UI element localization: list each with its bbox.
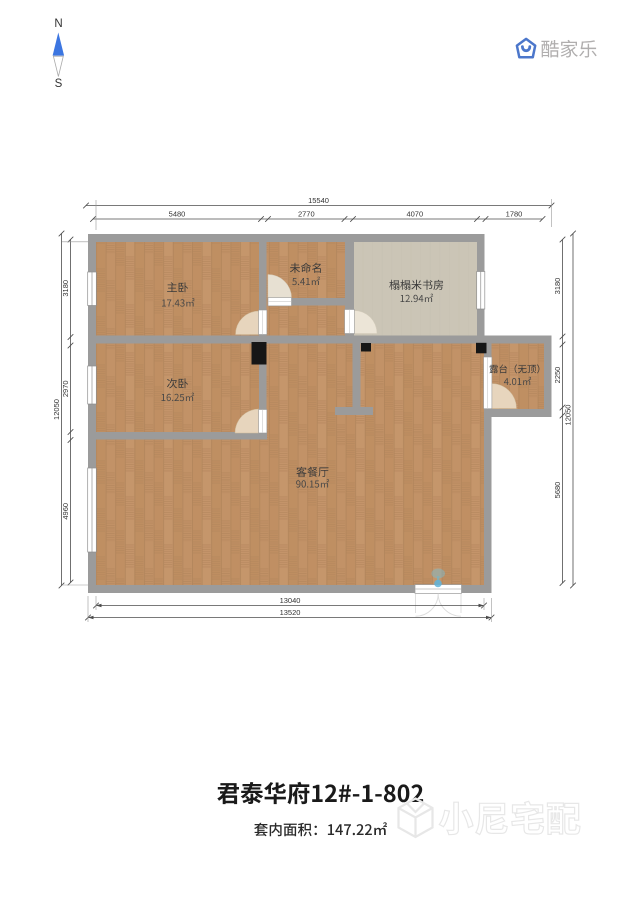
svg-text:13520: 13520 xyxy=(280,608,301,617)
svg-text:13040: 13040 xyxy=(280,596,301,605)
svg-text:1780: 1780 xyxy=(506,209,523,218)
svg-text:S: S xyxy=(55,78,63,90)
svg-text:2970: 2970 xyxy=(61,380,70,397)
svg-text:15540: 15540 xyxy=(308,196,329,205)
svg-text:2250: 2250 xyxy=(553,367,562,384)
svg-text:4070: 4070 xyxy=(406,209,423,218)
svg-text:5680: 5680 xyxy=(553,482,562,499)
svg-text:4960: 4960 xyxy=(61,503,70,520)
svg-text:5480: 5480 xyxy=(169,209,186,218)
svg-text:3180: 3180 xyxy=(61,280,70,297)
svg-text:3180: 3180 xyxy=(553,278,562,295)
svg-text:2770: 2770 xyxy=(298,209,315,218)
svg-text:12050: 12050 xyxy=(52,399,61,420)
svg-text:12050: 12050 xyxy=(564,405,573,426)
svg-text:N: N xyxy=(54,18,62,30)
